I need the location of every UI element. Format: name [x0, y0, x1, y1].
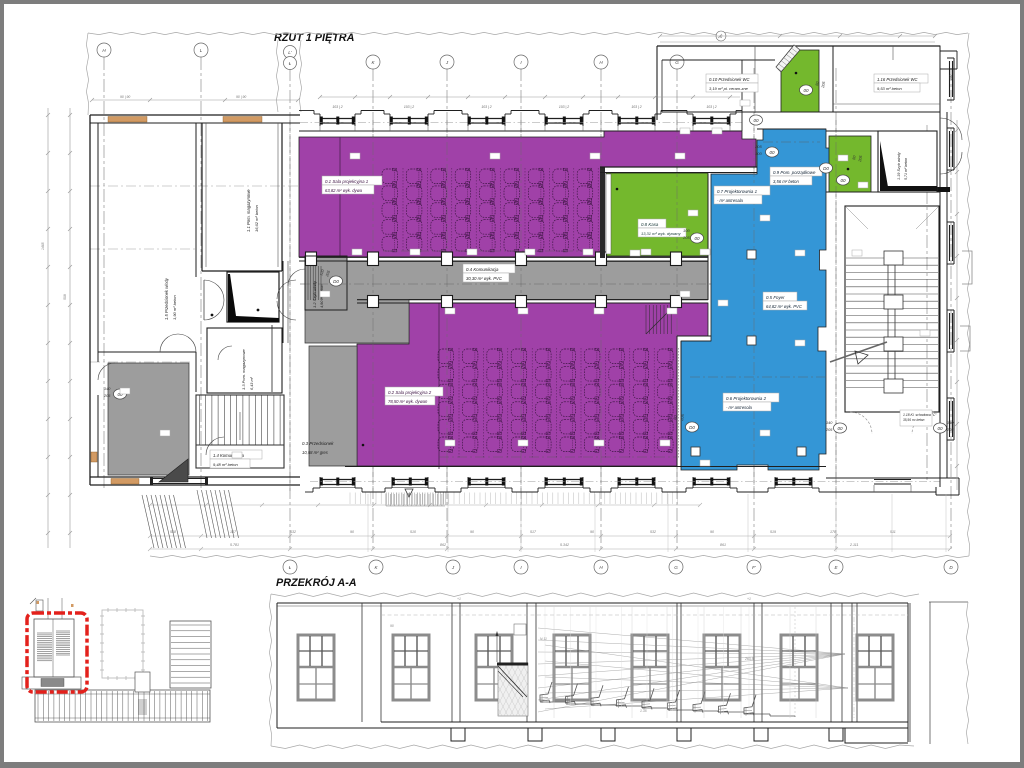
- svg-text:3,56 m² beton: 3,56 m² beton: [773, 179, 800, 184]
- svg-text:1.1 Pom. magazynowe: 1.1 Pom. magazynowe: [246, 189, 251, 232]
- svg-text:00: 00: [837, 426, 843, 431]
- svg-text:178: 178: [830, 530, 836, 534]
- svg-text:N.11: N.11: [540, 637, 547, 641]
- svg-text:D0: D0: [823, 166, 829, 171]
- svg-text:0.1 Sala projekcyjna 1: 0.1 Sala projekcyjna 1: [325, 179, 369, 184]
- svg-text:9,48 m² beton: 9,48 m² beton: [213, 462, 238, 467]
- svg-text:508: 508: [63, 294, 67, 300]
- svg-text:1,90 m² beton: 1,90 m² beton: [172, 295, 177, 320]
- svg-text:00: 00: [803, 88, 809, 93]
- svg-text:0.2 Sala projekcyjna 2: 0.2 Sala projekcyjna 2: [388, 390, 432, 395]
- svg-text:00: 00: [937, 426, 943, 431]
- svg-text:G: G: [675, 60, 679, 65]
- svg-text:90: 90: [710, 530, 714, 534]
- svg-text:103 | 2: 103 | 2: [631, 105, 641, 109]
- svg-text:532: 532: [290, 530, 296, 534]
- svg-text:5.781: 5.781: [230, 543, 239, 547]
- svg-text:0.10 Przedsionek WC: 0.10 Przedsionek WC: [709, 77, 750, 82]
- svg-text:100: 100: [755, 151, 762, 156]
- svg-text:63,82 m² wyk. dywa: 63,82 m² wyk. dywa: [325, 188, 363, 193]
- svg-text:103 | 2: 103 | 2: [404, 105, 414, 109]
- svg-text:16,62 m² beton: 16,62 m² beton: [254, 204, 259, 232]
- svg-text:+1: +1: [457, 597, 461, 601]
- svg-text:1.5 Przedsionek windy: 1.5 Przedsionek windy: [164, 277, 169, 320]
- svg-text:90 | 90: 90 | 90: [236, 95, 246, 99]
- svg-text:510: 510: [410, 530, 416, 534]
- svg-text:862: 862: [440, 543, 446, 547]
- svg-text:0.7 Projektorownia 1: 0.7 Projektorownia 1: [717, 189, 758, 194]
- svg-text:263,5: 263,5: [744, 657, 754, 661]
- svg-text:00: 00: [694, 236, 700, 241]
- svg-text:64,82 m² wyk. PVC: 64,82 m² wyk. PVC: [766, 304, 803, 309]
- svg-text:205: 205: [103, 394, 111, 398]
- svg-text:90: 90: [590, 530, 594, 534]
- svg-text:35,56 m² beton: 35,56 m² beton: [903, 418, 925, 422]
- svg-text:2.111: 2.111: [849, 543, 858, 547]
- svg-text:5,71 m² beton: 5,71 m² beton: [904, 158, 908, 180]
- svg-text:103 | 2: 103 | 2: [332, 105, 342, 109]
- svg-text:L': L': [288, 50, 292, 55]
- svg-text:103 | 2: 103 | 2: [481, 105, 491, 109]
- svg-text:100: 100: [949, 74, 953, 80]
- svg-text:1.2 Szyb windy: 1.2 Szyb windy: [312, 280, 317, 308]
- svg-text:- m² antresala: - m² antresala: [717, 198, 744, 203]
- svg-text:519: 519: [770, 530, 776, 534]
- svg-text:861: 861: [720, 543, 726, 547]
- svg-text:140: 140: [826, 421, 833, 425]
- svg-text:L: L: [200, 48, 203, 53]
- svg-text:187: 187: [230, 530, 237, 534]
- svg-text:0.5 Foyer: 0.5 Foyer: [766, 295, 785, 300]
- svg-text:9,53 m² beton: 9,53 m² beton: [877, 86, 902, 91]
- svg-text:0.9 Pom. porządkowe: 0.9 Pom. porządkowe: [773, 170, 816, 175]
- svg-text:5.342: 5.342: [560, 543, 569, 547]
- svg-text:F': F': [752, 565, 756, 570]
- svg-text:511: 511: [890, 530, 896, 534]
- svg-text:D0: D0: [689, 425, 695, 430]
- svg-text:103 | 2: 103 | 2: [706, 105, 716, 109]
- svg-text:+1: +1: [747, 597, 751, 601]
- svg-text:3,19 m² pł. ceram-zne: 3,19 m² pł. ceram-zne: [709, 86, 749, 91]
- svg-text:100: 100: [683, 228, 690, 233]
- svg-text:G: G: [674, 565, 678, 570]
- svg-text:Ł: Ł: [289, 565, 292, 570]
- svg-text:205: 205: [825, 428, 833, 432]
- svg-text:1.3 Pom. magazynowe: 1.3 Pom. magazynowe: [241, 349, 246, 390]
- svg-text:00: 00: [753, 118, 759, 123]
- svg-text:1.18 Kl. schodowa "C": 1.18 Kl. schodowa "C": [903, 413, 937, 417]
- svg-text:205: 205: [682, 235, 690, 240]
- svg-text:6,43 m²: 6,43 m²: [250, 376, 254, 390]
- svg-text:205: 205: [754, 144, 762, 149]
- svg-text:1.35: 1.35: [640, 709, 647, 713]
- svg-text:90: 90: [390, 624, 394, 628]
- svg-text:1.16 Przedsionek WC: 1.16 Przedsionek WC: [877, 77, 918, 82]
- svg-text:205: 205: [946, 428, 954, 432]
- svg-text:1465: 1465: [41, 242, 45, 250]
- svg-text:0.6 Projektorownia 2: 0.6 Projektorownia 2: [726, 396, 767, 401]
- svg-text:D0: D0: [333, 279, 339, 284]
- svg-text:S': S': [719, 35, 722, 39]
- svg-text:0.8 Kasa: 0.8 Kasa: [641, 222, 659, 227]
- svg-text:10,58 m² gres: 10,58 m² gres: [302, 450, 329, 455]
- svg-text:78,50 m² wyk. dywan: 78,50 m² wyk. dywan: [388, 399, 428, 404]
- svg-text:30,30 m² wyk. PVC: 30,30 m² wyk. PVC: [466, 276, 503, 281]
- svg-text:140: 140: [947, 421, 954, 425]
- svg-text:Ł: Ł: [289, 61, 292, 66]
- svg-text:13,31 m² wyk. dywany: 13,31 m² wyk. dywany: [641, 231, 682, 236]
- svg-text:1.19 Szyb windy: 1.19 Szyb windy: [897, 151, 901, 180]
- svg-text:90: 90: [470, 530, 474, 534]
- svg-text:- m² antresola: - m² antresola: [726, 405, 753, 410]
- svg-text:90 | 90: 90 | 90: [120, 95, 130, 99]
- svg-text:PRZEKRÓJ A-A: PRZEKRÓJ A-A: [276, 576, 357, 589]
- svg-text:103 | 2: 103 | 2: [559, 105, 569, 109]
- svg-text:00: 00: [769, 150, 775, 155]
- svg-text:517: 517: [530, 530, 537, 534]
- svg-text:0.4 Komunikacja: 0.4 Komunikacja: [466, 267, 499, 272]
- svg-text:00: 00: [840, 178, 846, 183]
- svg-text:140: 140: [104, 387, 111, 391]
- svg-text:90: 90: [350, 530, 354, 534]
- svg-text:532: 532: [650, 530, 656, 534]
- svg-text:0.3 Przedsionek: 0.3 Przedsionek: [302, 441, 334, 446]
